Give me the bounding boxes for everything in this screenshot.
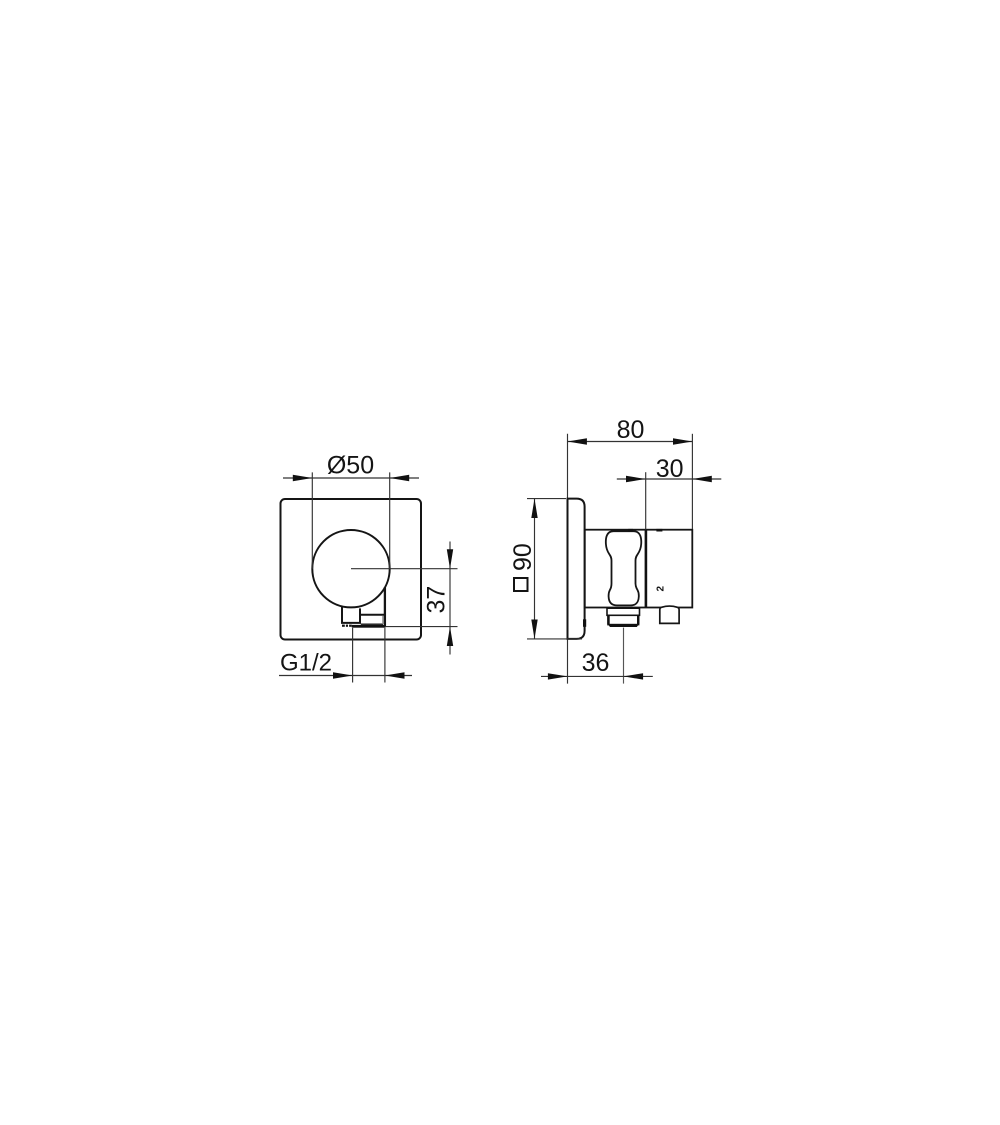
svg-text:36: 36 [582, 649, 610, 677]
svg-text:80: 80 [617, 416, 645, 444]
svg-text:30: 30 [656, 455, 684, 483]
svg-text:2: 2 [656, 586, 667, 592]
svg-text:90: 90 [509, 543, 537, 571]
svg-text:G1/2: G1/2 [280, 650, 332, 677]
svg-text:Ø50: Ø50 [327, 452, 374, 480]
svg-text:37: 37 [423, 586, 451, 614]
